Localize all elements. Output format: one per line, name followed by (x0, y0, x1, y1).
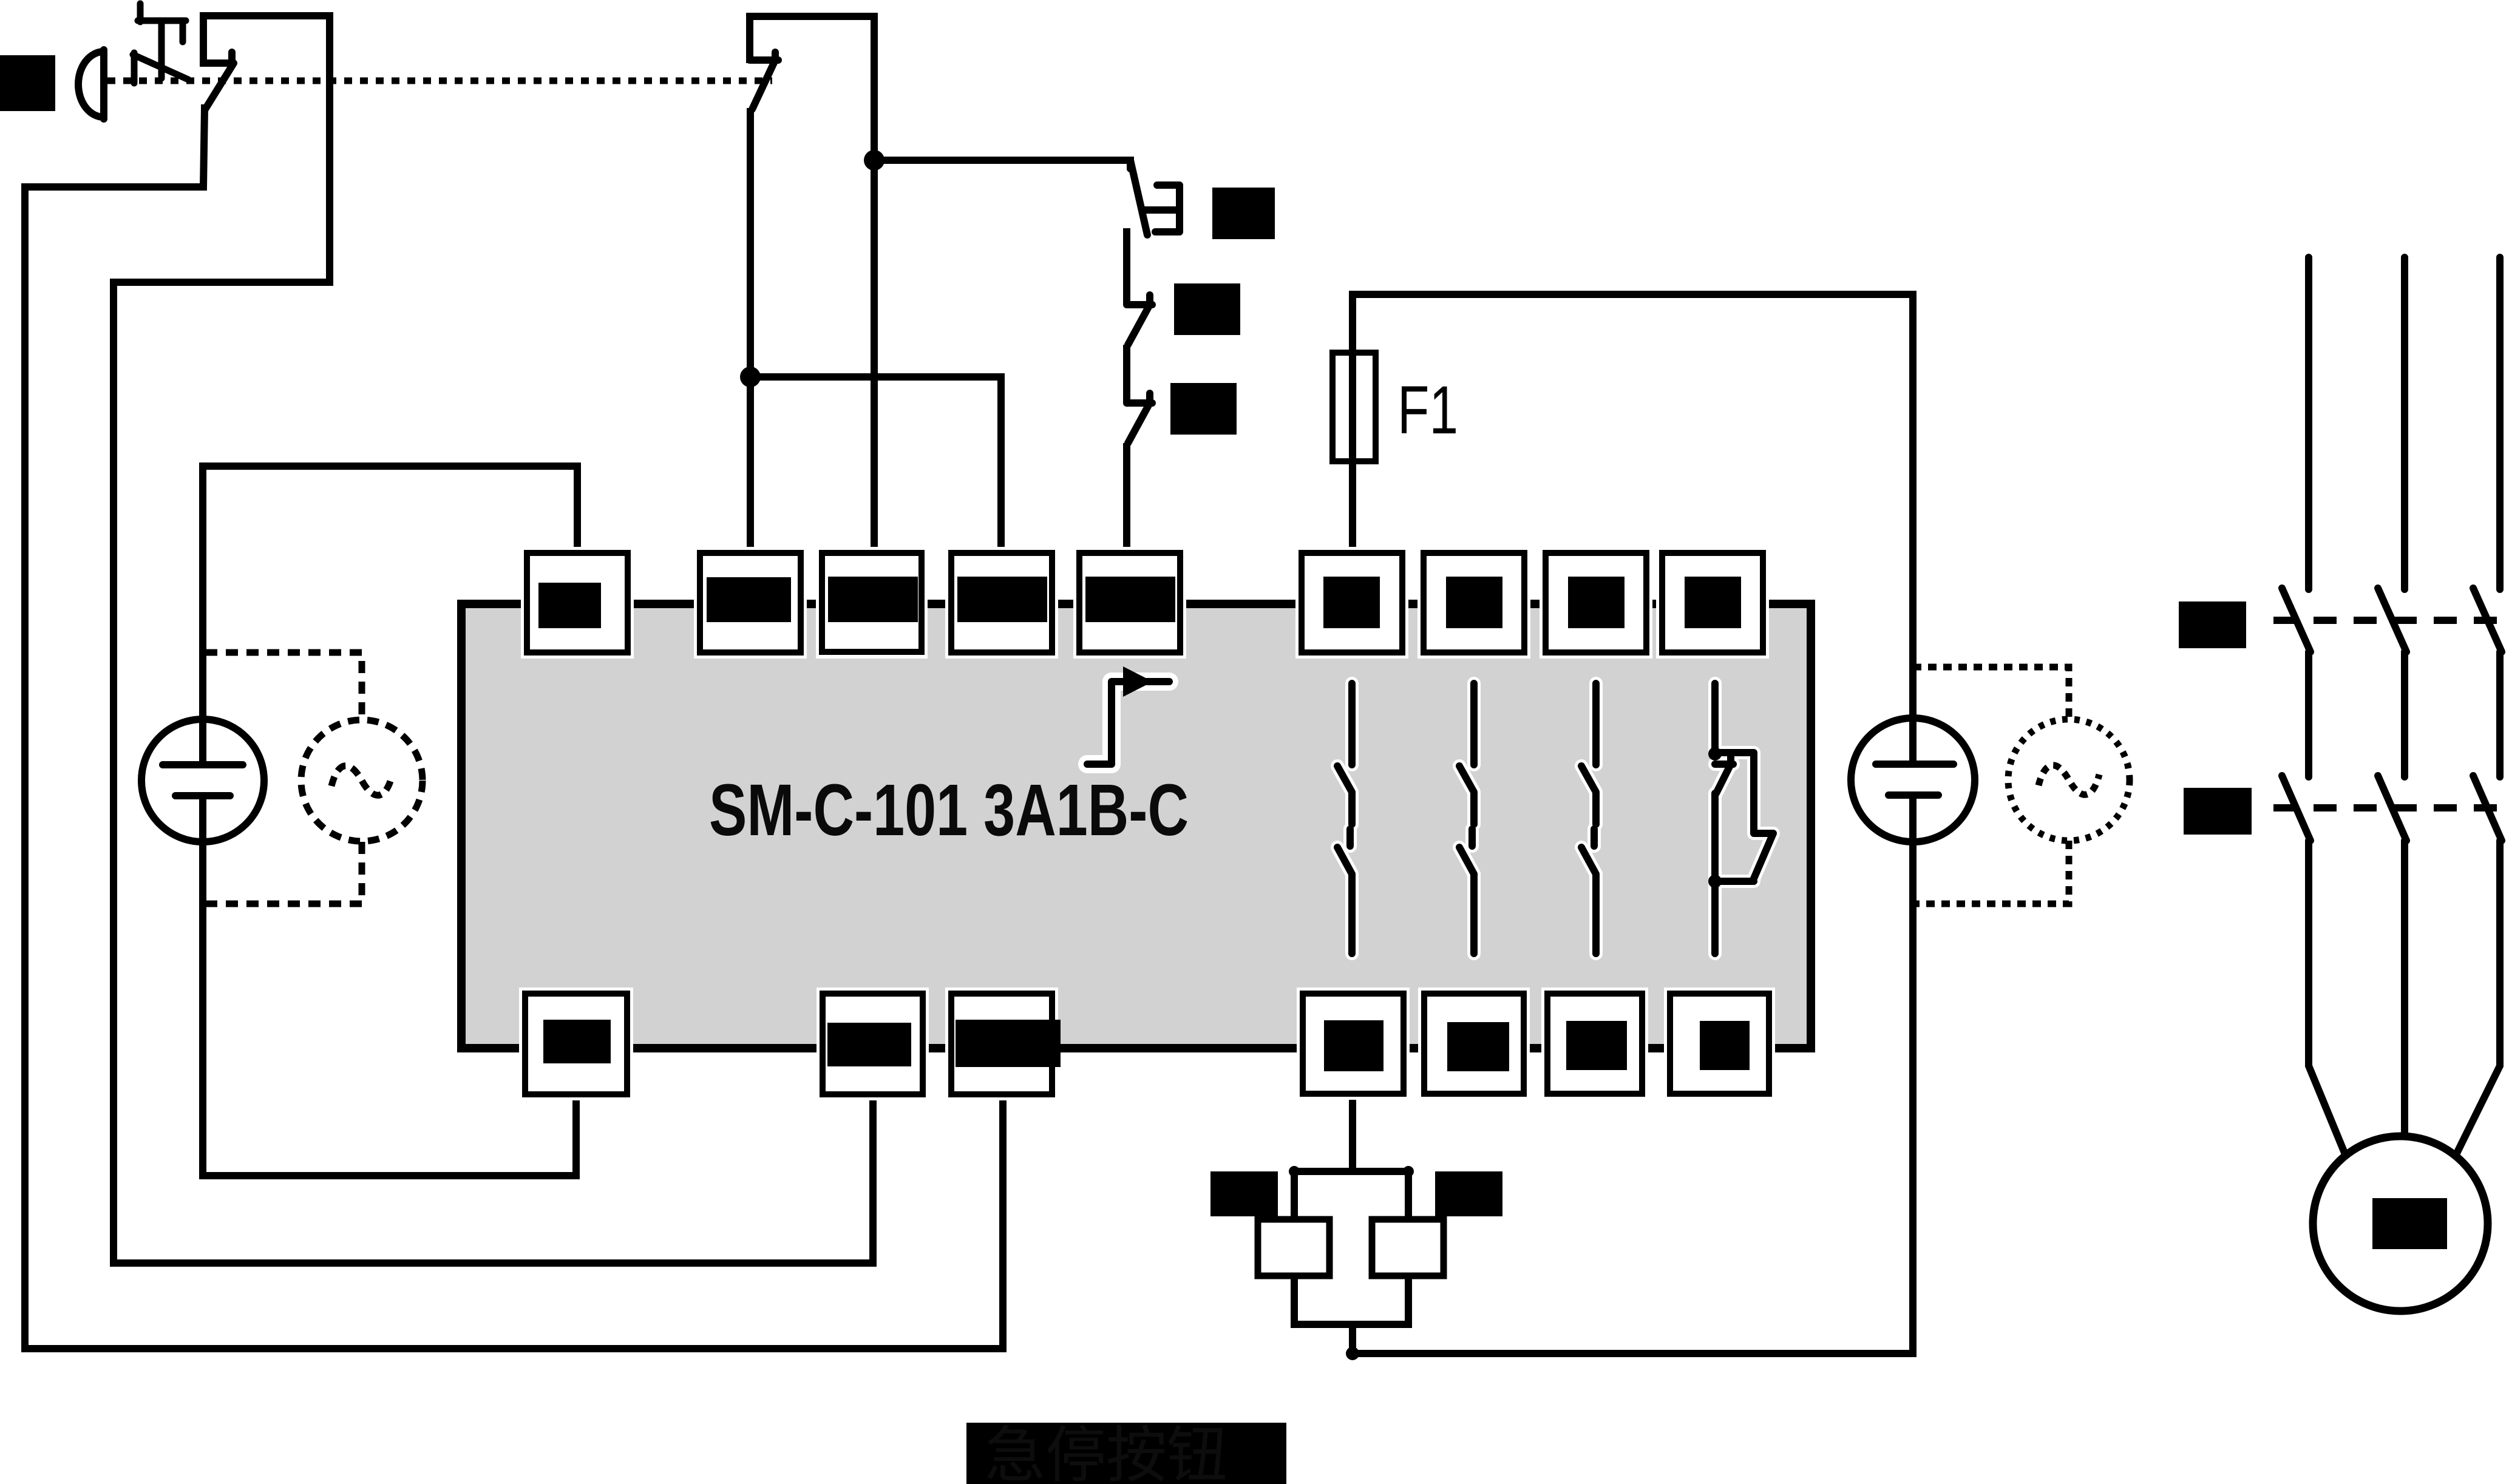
svg-text:SM-C-101 3A1B-C: SM-C-101 3A1B-C (709, 768, 1189, 851)
svg-text:急停按钮: 急停按钮 (985, 1421, 1227, 1484)
svg-text:F1: F1 (1397, 372, 1458, 448)
